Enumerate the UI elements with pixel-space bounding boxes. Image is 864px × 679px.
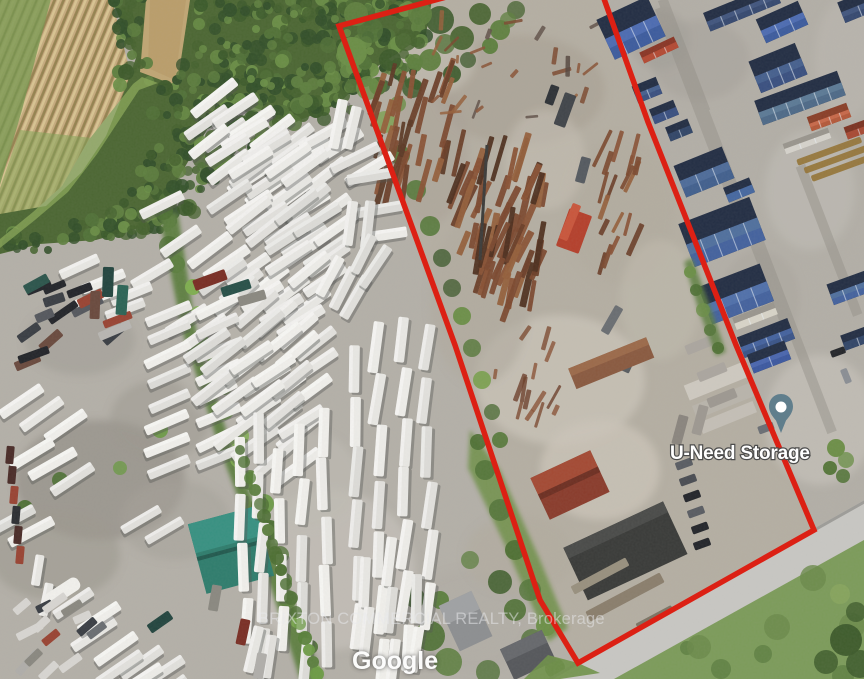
svg-text:U-Need Storage: U-Need Storage [670, 443, 810, 464]
svg-text:BRIXTON COMMERCIAL REALTY, Bro: BRIXTON COMMERCIAL REALTY, Brokerage [258, 610, 605, 628]
svg-text:Google: Google [352, 647, 438, 675]
